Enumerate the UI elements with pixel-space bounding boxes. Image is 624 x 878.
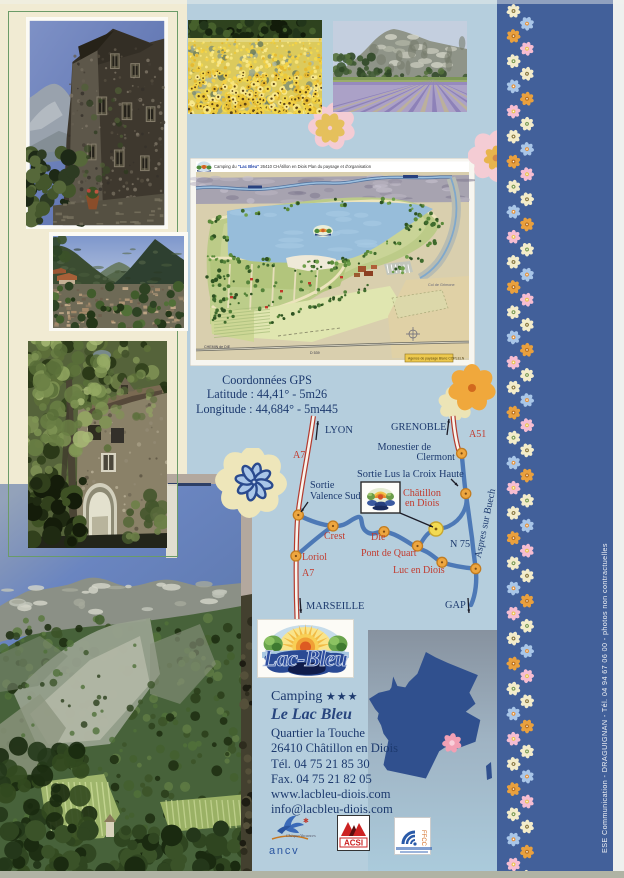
svg-text:Clermont: Clermont (417, 452, 456, 463)
svg-text:Valence Sud: Valence Sud (310, 491, 361, 502)
svg-text:A51: A51 (469, 429, 486, 440)
svg-text:ESE Communication - DRAGUIGNAN: ESE Communication - DRAGUIGNAN - Tél. 04… (600, 543, 609, 853)
svg-text:Agence de paysage Blanc COPLEL: Agence de paysage Blanc COPLELN (408, 357, 465, 361)
svg-text:A7: A7 (293, 450, 305, 461)
svg-text:FFCC: FFCC (420, 830, 426, 847)
svg-text:Sortie Lus la Croix Haute: Sortie Lus la Croix Haute (357, 469, 464, 480)
svg-text:Die: Die (371, 532, 386, 543)
svg-text:N 75: N 75 (450, 539, 470, 550)
svg-text:Crest: Crest (324, 531, 345, 542)
svg-text:Chèque-Vacances: Chèque-Vacances (286, 833, 316, 838)
svg-text:Sortie: Sortie (310, 480, 335, 491)
svg-text:Camping du "Lac Bleu" 26410: Camping du "Lac Bleu" 26410 CHÂtillon en… (214, 164, 372, 169)
svg-text:Col de Grimone: Col de Grimone (428, 283, 455, 287)
svg-text:en Diois: en Diois (405, 498, 439, 509)
svg-text:Aspres sur Buech: Aspres sur Buech (473, 488, 498, 559)
svg-text:A7: A7 (302, 568, 314, 579)
svg-text:CHEMIN de DIE: CHEMIN de DIE (204, 345, 231, 349)
svg-text:GRENOBLE: GRENOBLE (391, 422, 446, 433)
svg-text:Luc en Diois: Luc en Diois (393, 565, 445, 576)
svg-text:GAP: GAP (445, 600, 466, 611)
svg-text:Loriol: Loriol (302, 552, 327, 563)
svg-text:✱: ✱ (303, 817, 309, 825)
svg-text:ancv: ancv (269, 845, 299, 857)
svg-text:MARSEILLE: MARSEILLE (306, 601, 364, 612)
svg-text:Pont de Quart: Pont de Quart (361, 548, 417, 559)
svg-text:D 539: D 539 (310, 351, 320, 355)
svg-text:ACSI: ACSI (344, 839, 363, 848)
svg-text:Lac-Bleu: Lac-Bleu (262, 646, 348, 672)
svg-text:LYON: LYON (325, 425, 353, 436)
